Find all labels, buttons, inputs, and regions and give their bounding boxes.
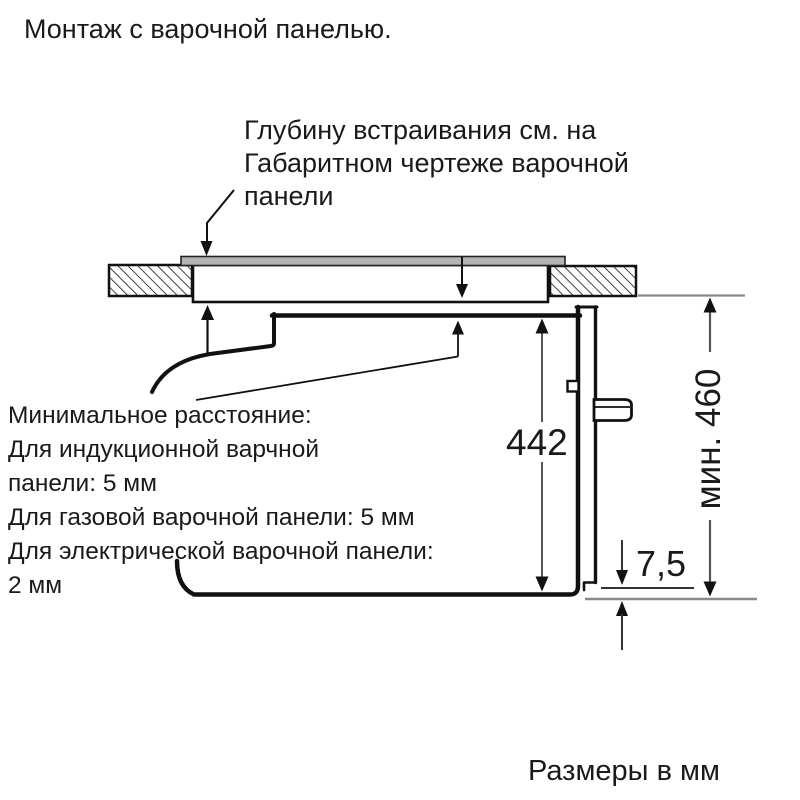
rear-mounting-notch <box>568 381 579 392</box>
page-title: Монтаж с варочной панелью. <box>24 14 392 45</box>
hob-top-plate <box>181 257 565 266</box>
embedding-depth-note-line3: панели <box>244 180 629 213</box>
min-distance-line2: Для индукционной варчной <box>8 433 434 467</box>
min-distance-arrow-left <box>201 305 214 353</box>
min-distance-line6: 2 мм <box>8 569 434 603</box>
installation-diagram-page: Монтаж с варочной панелью. Глубину встра… <box>0 0 800 800</box>
units-note: Размеры в мм <box>528 755 720 788</box>
embedding-depth-note: Глубину встраивания см. на Габаритном че… <box>244 114 629 213</box>
dimension-442-label: 442 <box>506 422 568 464</box>
embedding-depth-leader <box>201 190 235 256</box>
dimension-75-label: 7,5 <box>636 543 686 585</box>
min-distance-line3: панели: 5 мм <box>8 467 434 501</box>
mains-plug-box <box>594 400 632 421</box>
dimension-75-arrows <box>616 540 628 650</box>
min-distance-leader-right <box>196 321 464 401</box>
min-distance-line1: Минимальное расстояние: <box>8 399 434 433</box>
min-distance-line5: Для электрической варочной панели: <box>8 535 434 569</box>
embedding-depth-note-line1: Глубину встраивания см. на <box>244 114 629 147</box>
embedding-depth-note-line2: Габаритном чертеже варочной <box>244 147 629 180</box>
worktop-hatch-left <box>109 265 192 296</box>
worktop-hatch-right <box>550 266 636 296</box>
hob-body <box>193 265 548 302</box>
min-distance-note: Минимальное расстояние: Для индукционной… <box>8 399 434 603</box>
min-distance-line4: Для газовой варочной панели: 5 мм <box>8 501 434 535</box>
dimension-460-label: мин. 460 <box>689 335 725 543</box>
